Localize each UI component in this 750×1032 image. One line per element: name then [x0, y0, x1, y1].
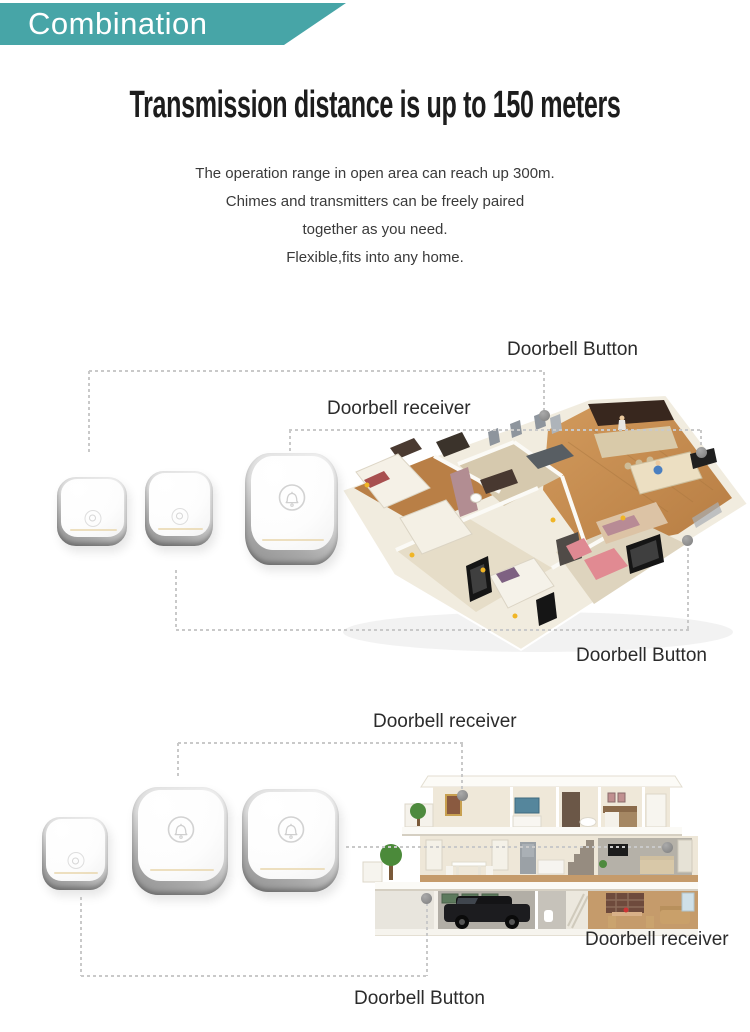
- doorbell-receiver-label: Doorbell receiver: [327, 398, 471, 420]
- connector-line: [175, 570, 177, 629]
- bell-icon: [274, 812, 308, 851]
- connector-line: [178, 742, 463, 744]
- bell-icon: [67, 852, 84, 869]
- connector-line: [289, 430, 291, 452]
- doorbell-receiver-label-right: Doorbell receiver: [585, 929, 729, 951]
- connector-line: [543, 372, 545, 412]
- product-infographic: Combination Transmission distance is up …: [0, 0, 750, 1032]
- banner-ribbon: Combination: [0, 3, 348, 45]
- connector-line: [176, 629, 689, 631]
- connector-dot: [457, 790, 468, 801]
- connector-dot: [696, 447, 707, 458]
- connector-dot: [539, 410, 550, 421]
- description: The operation range in open area can rea…: [0, 160, 750, 272]
- doorbell-receiver-device: [132, 787, 228, 895]
- connector-line: [289, 429, 701, 431]
- bell-icon: [275, 480, 309, 519]
- bell-icon: [164, 812, 198, 851]
- banner-title: Combination: [0, 3, 348, 45]
- bell-icon: [171, 508, 188, 525]
- house-cutaway-photo: [360, 762, 710, 940]
- connector-dot: [662, 842, 673, 853]
- headline: Transmission distance is up to 150 meter…: [0, 84, 750, 127]
- doorbell-receiver-device: [242, 789, 339, 892]
- connector-dot: [682, 535, 693, 546]
- doorbell-button-label-bottom: Doorbell Button: [576, 645, 707, 667]
- connector-line: [80, 897, 82, 976]
- doorbell-button-label-bottom2: Doorbell Button: [354, 988, 485, 1010]
- doorbell-receiver-label-top: Doorbell receiver: [373, 711, 517, 733]
- doorbell-receiver-device: [245, 453, 338, 565]
- description-line: The operation range in open area can rea…: [0, 160, 750, 188]
- bell-icon: [84, 510, 101, 527]
- connector-line: [89, 370, 545, 372]
- connector-line: [88, 371, 90, 453]
- doorbell-button-device: [42, 817, 108, 890]
- doorbell-button-device: [145, 471, 213, 546]
- connector-dot: [421, 893, 432, 904]
- description-line: together as you need.: [0, 216, 750, 244]
- connector-line: [461, 744, 463, 791]
- connector-line: [346, 846, 664, 848]
- connector-line: [426, 903, 428, 976]
- connector-line: [177, 743, 179, 779]
- connector-line: [687, 548, 689, 629]
- doorbell-button-label-top: Doorbell Button: [507, 339, 638, 361]
- description-line: Chimes and transmitters can be freely pa…: [0, 188, 750, 216]
- doorbell-button-device: [57, 477, 127, 546]
- description-line: Flexible,fits into any home.: [0, 244, 750, 272]
- connector-line: [81, 975, 428, 977]
